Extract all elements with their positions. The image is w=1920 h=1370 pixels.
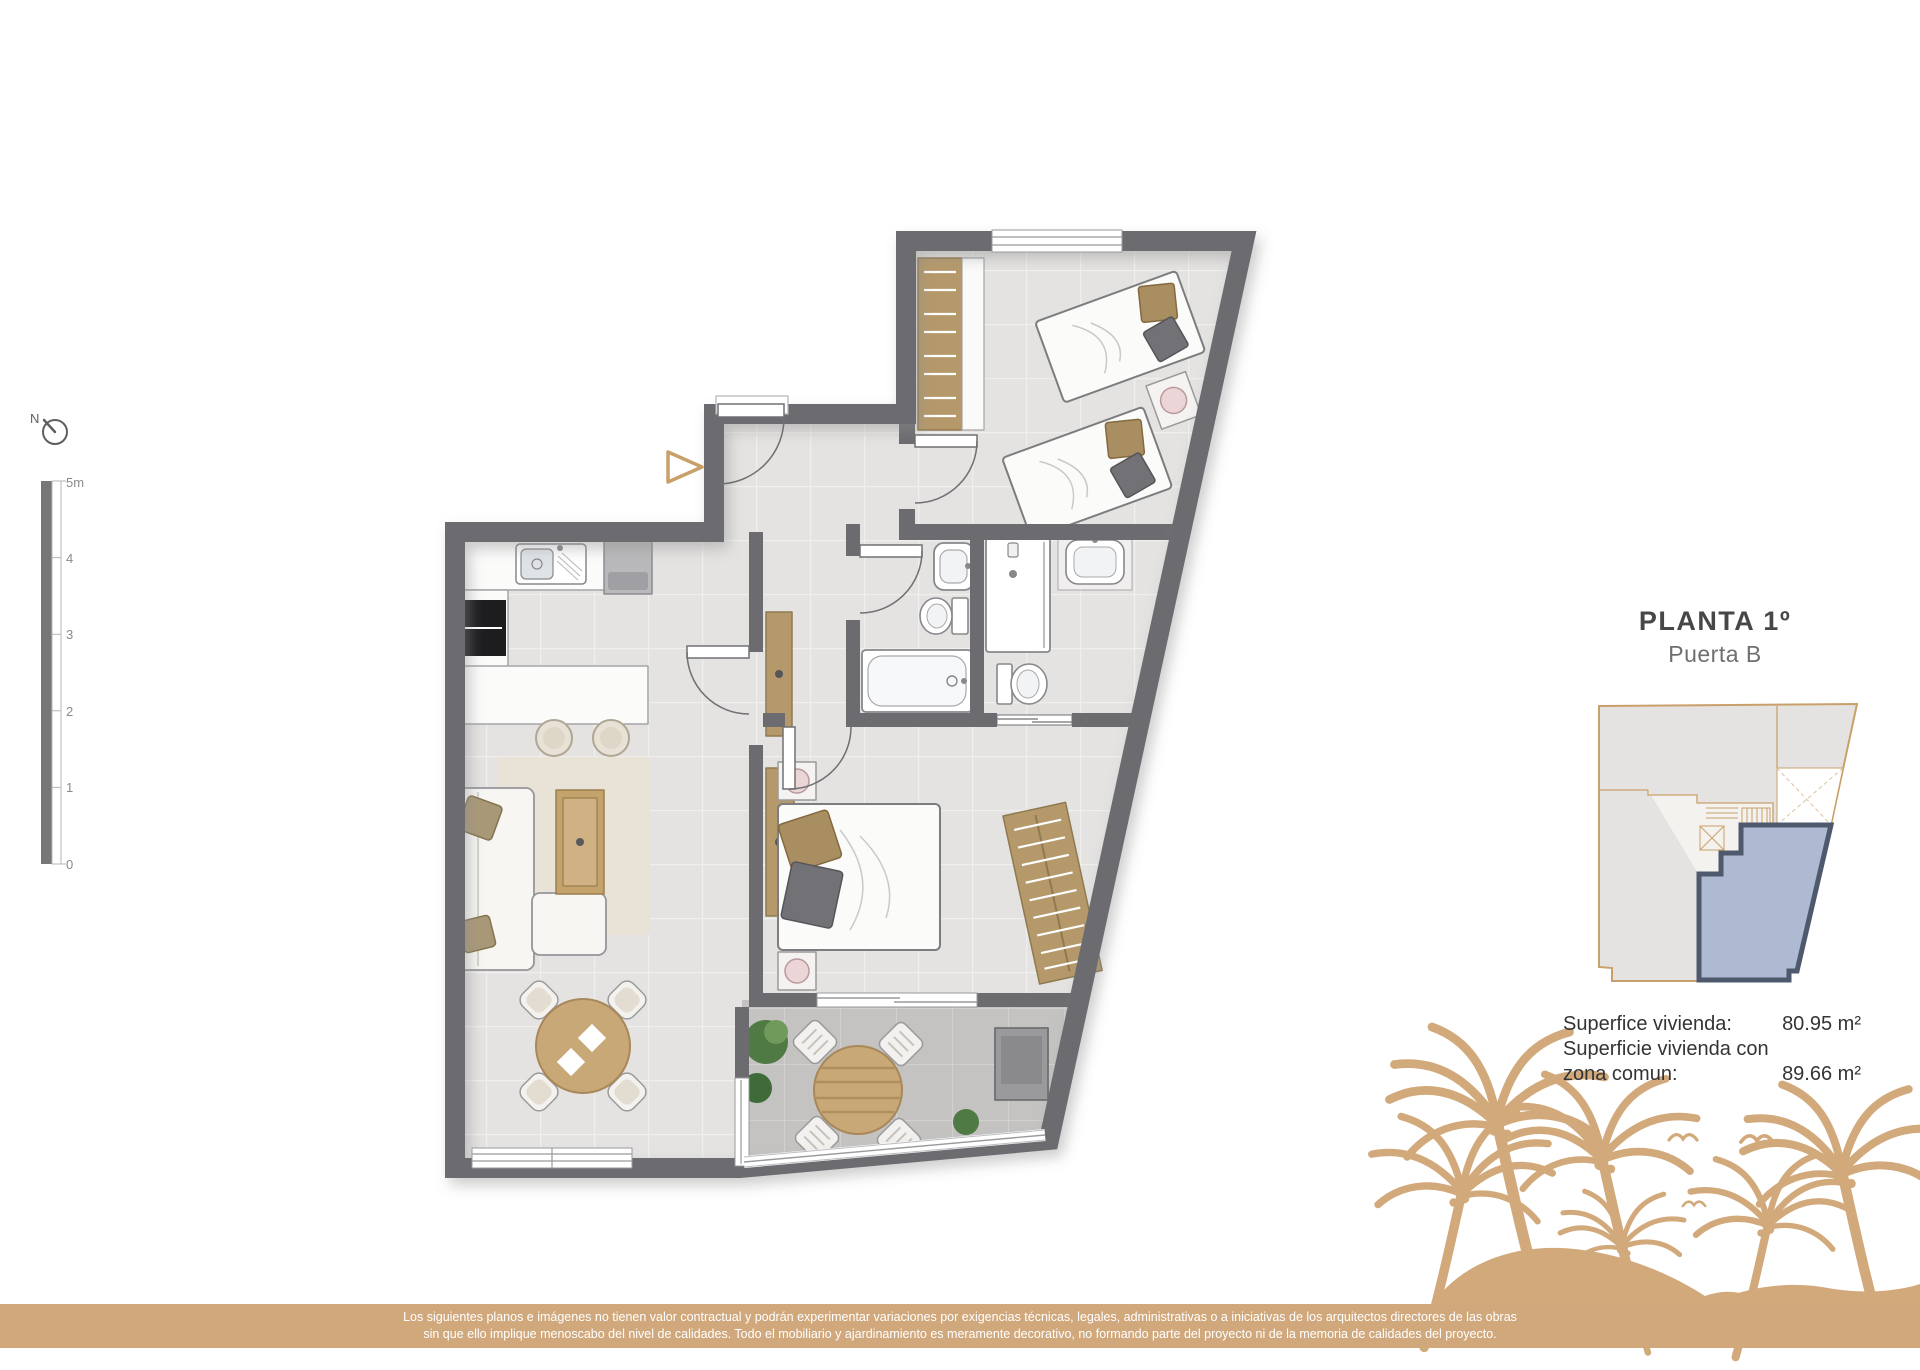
- disclaimer-line-1: Los siguientes planos e imágenes no tien…: [0, 1309, 1920, 1326]
- disclaimer-line-2: sin que ello implique menoscabo del nive…: [0, 1326, 1920, 1343]
- floor-plan-canvas: N 5m 4 3 2 1 0: [0, 0, 1920, 1370]
- bird-icon: [1683, 1202, 1705, 1206]
- page-title: PLANTA 1º: [1555, 606, 1875, 637]
- area-value: 80.95 m²: [1782, 1012, 1861, 1037]
- bathroom1-toilet: [920, 598, 968, 634]
- area-value: 89.66 m²: [1782, 1062, 1861, 1087]
- area-label: Superficie vivienda con: [1563, 1037, 1769, 1062]
- bird-icon: [1669, 1135, 1697, 1140]
- bathroom2-toilet: [997, 664, 1047, 704]
- disclaimer-bar: Los siguientes planos e imágenes no tien…: [0, 1304, 1920, 1348]
- area-row-zona-comun: zona comun: 89.66 m²: [1563, 1062, 1861, 1087]
- kitchen-oven-column: [458, 600, 506, 656]
- master-bed: [778, 804, 940, 950]
- scale-label-3: 3: [66, 627, 73, 642]
- north-label: N: [30, 411, 39, 426]
- scale-label-5: 5m: [66, 475, 84, 490]
- kitchen-cooktop: [604, 536, 652, 594]
- bathroom1-bathtub: [862, 650, 972, 712]
- scale-bar: 5m 4 3 2 1 0: [41, 475, 84, 872]
- bathroom2-vanity: [1058, 534, 1132, 590]
- scale-label-4: 4: [66, 551, 73, 566]
- scale-label-1: 1: [66, 780, 73, 795]
- area-row-vivienda: Superfice vivienda: 80.95 m²: [1563, 1012, 1861, 1037]
- location-minimap: [1599, 704, 1857, 981]
- area-label: Superfice vivienda:: [1563, 1012, 1732, 1037]
- kitchen-island: [456, 666, 648, 724]
- kitchen-sink: [516, 544, 586, 584]
- area-row-con-zona: Superficie vivienda con: [1563, 1037, 1861, 1062]
- scale-label-0: 0: [66, 857, 73, 872]
- bathroom1-sink: [934, 543, 974, 590]
- entry-arrow-icon: [668, 452, 702, 482]
- page-subtitle: Puerta B: [1555, 641, 1875, 668]
- area-label: zona comun:: [1563, 1062, 1678, 1087]
- surface-areas: Superfice vivienda: 80.95 m² Superficie …: [1563, 1012, 1861, 1087]
- scale-label-2: 2: [66, 704, 73, 719]
- north-compass-icon: N: [30, 411, 67, 444]
- terrace-cabinet: [995, 1028, 1048, 1100]
- twin-bedroom-wardrobe: [918, 258, 984, 430]
- plan-title-block: PLANTA 1º Puerta B: [1555, 606, 1875, 668]
- coffee-table: [556, 790, 604, 894]
- bathroom2-shower: [986, 538, 1050, 652]
